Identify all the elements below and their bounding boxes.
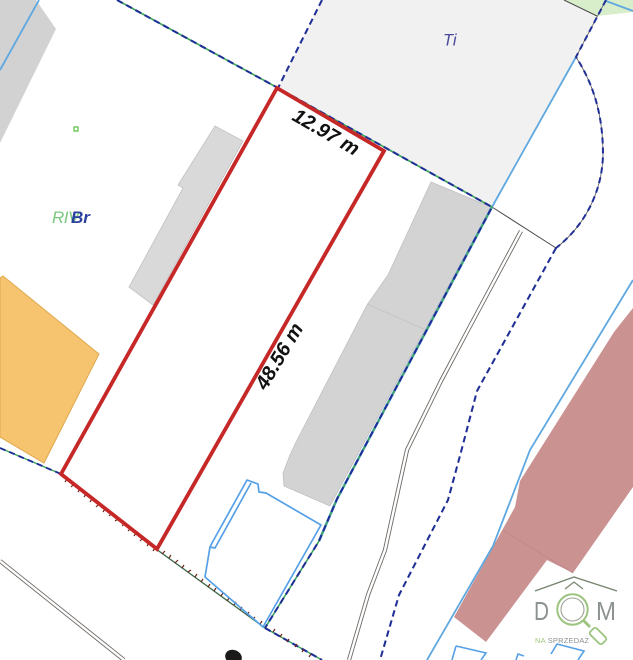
svg-text:M: M	[596, 596, 616, 626]
svg-text:Ti: Ti	[443, 32, 458, 50]
svg-text:D: D	[534, 596, 549, 626]
svg-text:Br: Br	[71, 208, 91, 227]
svg-text:NA SPRZEDAŻ: NA SPRZEDAŻ	[535, 636, 590, 645]
